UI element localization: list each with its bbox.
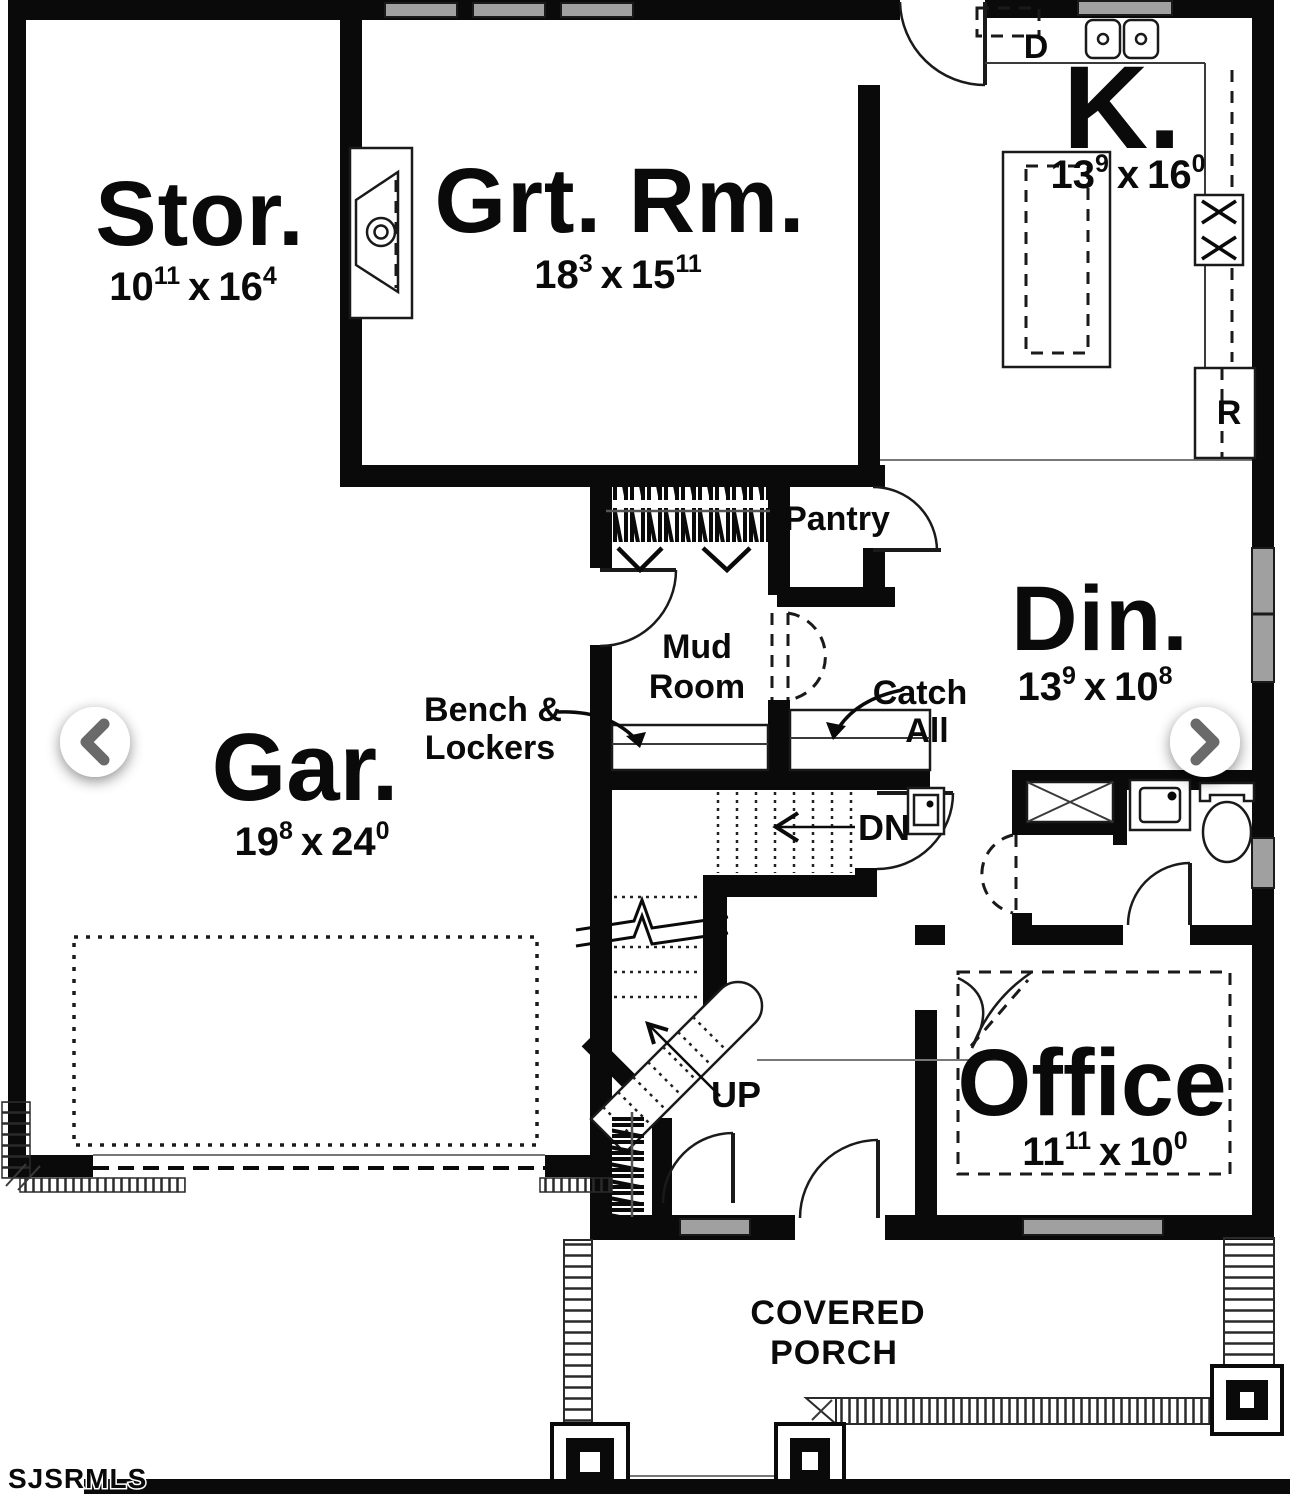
carousel-prev-button[interactable] [60,707,130,777]
linen-closet-icon [1027,782,1113,822]
window [1023,1219,1163,1235]
door-greatroom-kitchen [900,2,985,85]
label-stairs-down: DN [858,807,910,848]
hall-cabinet-icon [908,788,944,834]
watermark: SJSRMLS [8,1463,147,1494]
room-label-dining: Din. [1011,568,1189,670]
room-dim-great-room: 183x1511 [534,250,702,297]
label-dishwasher: D [1024,28,1049,66]
window [1252,838,1274,888]
porch-column [1212,1366,1282,1434]
entry-closet-rod-icon [612,1112,652,1217]
room-label-pantry: Pantry [784,500,890,538]
label-stairs-up: UP [711,1074,761,1115]
room-dim-storage: 1011x164 [109,262,277,309]
label-bench-lockers-line1: Bench & [424,691,562,729]
room-dim-dining: 139x108 [1017,662,1172,709]
carousel-next-button[interactable] [1170,707,1240,777]
room-label-mud-room-line1: Mud [662,628,732,666]
label-bench-lockers-line2: Lockers [425,729,555,767]
porch-railing [836,1398,1224,1424]
label-covered-porch-line1: COVERED [750,1294,925,1332]
window [561,3,633,17]
room-label-office: Office [957,1030,1226,1136]
label-catch-all-line2: All [905,712,948,750]
door-hall-bath-dashed [982,835,1016,913]
room-label-garage: Gar. [212,714,399,821]
listing-photo-viewer: Stor. 1011x164 Grt. Rm. 183x1511 K. 139x… [0,0,1290,1494]
door-entry-closet [663,1133,733,1203]
floor-plan-image: Stor. 1011x164 Grt. Rm. 183x1511 K. 139x… [0,0,1290,1494]
room-label-storage: Stor. [95,163,304,265]
covered-porch [552,1238,1282,1494]
mud-bench [612,725,768,770]
door-bath [1128,863,1190,925]
stairs-down [718,792,855,873]
door-mudroom-hall-dashed [772,613,825,700]
room-dim-garage: 198x240 [234,817,389,864]
room-dim-office: 1111x100 [1022,1127,1187,1174]
porch-steps-left [564,1240,592,1424]
window [385,3,457,17]
room-label-great-room: Grt. Rm. [435,150,806,252]
image-bottom-band [84,1479,1290,1494]
window [680,1219,750,1235]
range-icon [1195,195,1243,265]
vanity-sink-icon [1130,780,1190,830]
porch-steps-right [1224,1238,1274,1368]
label-refrigerator: R [1217,394,1242,432]
garage-door [20,937,612,1192]
fireplace-icon [350,148,412,318]
mud-closet-rod-icon [606,476,770,570]
toilet-icon [1200,783,1254,862]
label-catch-all-line1: Catch [873,674,967,712]
window [1078,1,1172,15]
room-label-mud-room-line2: Room [649,668,745,706]
room-dim-kitchen: 139x160 [1050,150,1205,197]
label-covered-porch-line2: PORCH [770,1334,898,1372]
window [473,3,545,17]
door-front-entry [800,1140,878,1218]
